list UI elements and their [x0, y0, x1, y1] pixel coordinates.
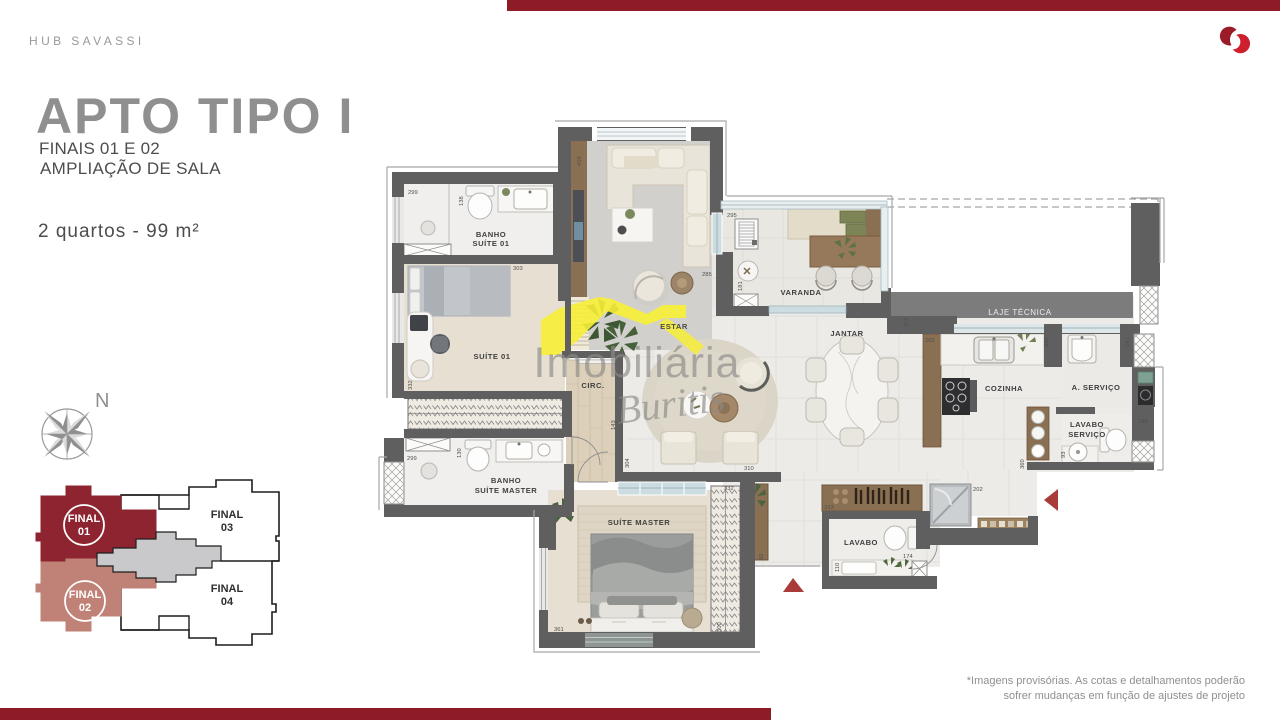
svg-text:143: 143	[611, 420, 617, 430]
svg-text:299: 299	[408, 190, 418, 196]
svg-text:BANHO: BANHO	[476, 230, 506, 239]
svg-text:303: 303	[513, 266, 523, 272]
svg-text:110: 110	[835, 563, 841, 572]
svg-text:304: 304	[625, 458, 631, 468]
svg-text:310: 310	[744, 466, 754, 472]
svg-text:332: 332	[724, 486, 734, 492]
svg-text:360: 360	[1020, 459, 1026, 469]
svg-text:01: 01	[78, 526, 90, 538]
svg-text:141: 141	[1125, 337, 1131, 347]
svg-text:242: 242	[1044, 337, 1050, 347]
svg-text:04: 04	[221, 596, 234, 608]
svg-text:300: 300	[717, 622, 723, 632]
svg-text:COZINHA: COZINHA	[985, 384, 1023, 393]
svg-text:93: 93	[1061, 452, 1067, 458]
svg-text:03: 03	[221, 522, 233, 534]
svg-text:92: 92	[759, 554, 765, 560]
svg-text:FINAL: FINAL	[211, 583, 244, 595]
svg-text:130: 130	[457, 448, 463, 458]
svg-text:LAVABO: LAVABO	[844, 538, 878, 547]
svg-text:LAJE TÉCNICA: LAJE TÉCNICA	[988, 308, 1052, 317]
svg-text:SERVIÇO: SERVIÇO	[1068, 430, 1106, 439]
svg-text:SUÍTE MASTER: SUÍTE MASTER	[608, 518, 671, 527]
svg-text:295: 295	[727, 213, 737, 219]
svg-text:138: 138	[459, 196, 465, 206]
svg-text:299: 299	[407, 456, 417, 462]
svg-text:361: 361	[554, 627, 564, 633]
svg-text:02: 02	[79, 602, 91, 614]
svg-text:SUÍTE 01: SUÍTE 01	[474, 352, 511, 361]
svg-text:N: N	[95, 390, 109, 412]
svg-text:285: 285	[702, 272, 712, 278]
svg-text:A. SERVIÇO: A. SERVIÇO	[1072, 383, 1121, 392]
svg-text:262: 262	[925, 338, 935, 344]
svg-text:333: 333	[824, 505, 834, 511]
svg-text:189: 189	[1138, 419, 1148, 425]
svg-text:JANTAR: JANTAR	[830, 329, 863, 338]
svg-text:BANHO: BANHO	[491, 476, 521, 485]
svg-text:332: 332	[408, 380, 414, 390]
svg-text:LAVABO: LAVABO	[1070, 420, 1104, 429]
svg-text:ESTAR: ESTAR	[660, 322, 688, 331]
svg-text:VARANDA: VARANDA	[781, 288, 822, 297]
svg-text:174: 174	[903, 554, 913, 560]
svg-text:410: 410	[577, 156, 583, 166]
svg-text:SUÍTE 01: SUÍTE 01	[473, 239, 510, 248]
svg-text:374: 374	[904, 317, 910, 327]
svg-text:181: 181	[738, 281, 744, 291]
svg-text:FINAL: FINAL	[211, 509, 244, 521]
svg-text:SUÍTE MASTER: SUÍTE MASTER	[475, 486, 538, 495]
svg-text:202: 202	[973, 487, 983, 493]
svg-text:FINAL: FINAL	[69, 589, 102, 601]
svg-text:FINAL: FINAL	[68, 513, 101, 525]
